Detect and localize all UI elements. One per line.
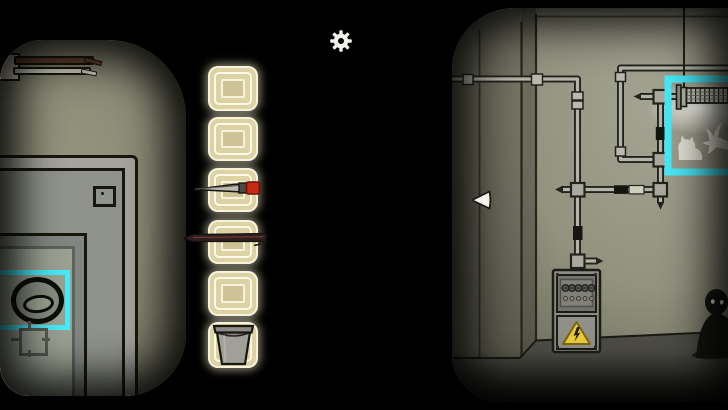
crosshair-tick: [42, 338, 50, 341]
fuse-box[interactable]: [553, 270, 600, 352]
crosshair-tick: [11, 338, 19, 341]
inventory-slot-5[interactable]: [208, 271, 258, 316]
safe-hinge-pin: [101, 192, 104, 195]
right-room-scene: [452, 8, 728, 402]
cut-wire-brown[interactable]: [14, 56, 94, 65]
crosshair-tick: [28, 321, 31, 328]
left-room-view: [0, 40, 186, 396]
inventory-slot-2[interactable]: [208, 117, 258, 161]
dial-handle-slot: [22, 293, 55, 315]
bucket-item[interactable]: [210, 321, 257, 368]
crosshair-knob[interactable]: [19, 328, 48, 356]
wall-corner-strip: [521, 8, 536, 372]
cut-wire-white-tip: [81, 68, 98, 76]
settings-gear-icon[interactable]: [329, 29, 353, 53]
right-room-view: [452, 8, 728, 402]
safe-dial[interactable]: [11, 277, 64, 324]
inventory-slot-1[interactable]: [208, 66, 258, 111]
scalpel-item[interactable]: [193, 180, 263, 196]
safe-hinge-square: [93, 186, 116, 207]
figure-eye: [720, 300, 724, 305]
game-screen: [0, 0, 728, 410]
navigate-left-arrow[interactable]: [469, 189, 493, 211]
cut-wire-white[interactable]: [13, 67, 91, 75]
crosshair-tick: [28, 350, 31, 357]
figure-eye: [711, 299, 715, 304]
metal-rod-item[interactable]: [184, 232, 268, 248]
